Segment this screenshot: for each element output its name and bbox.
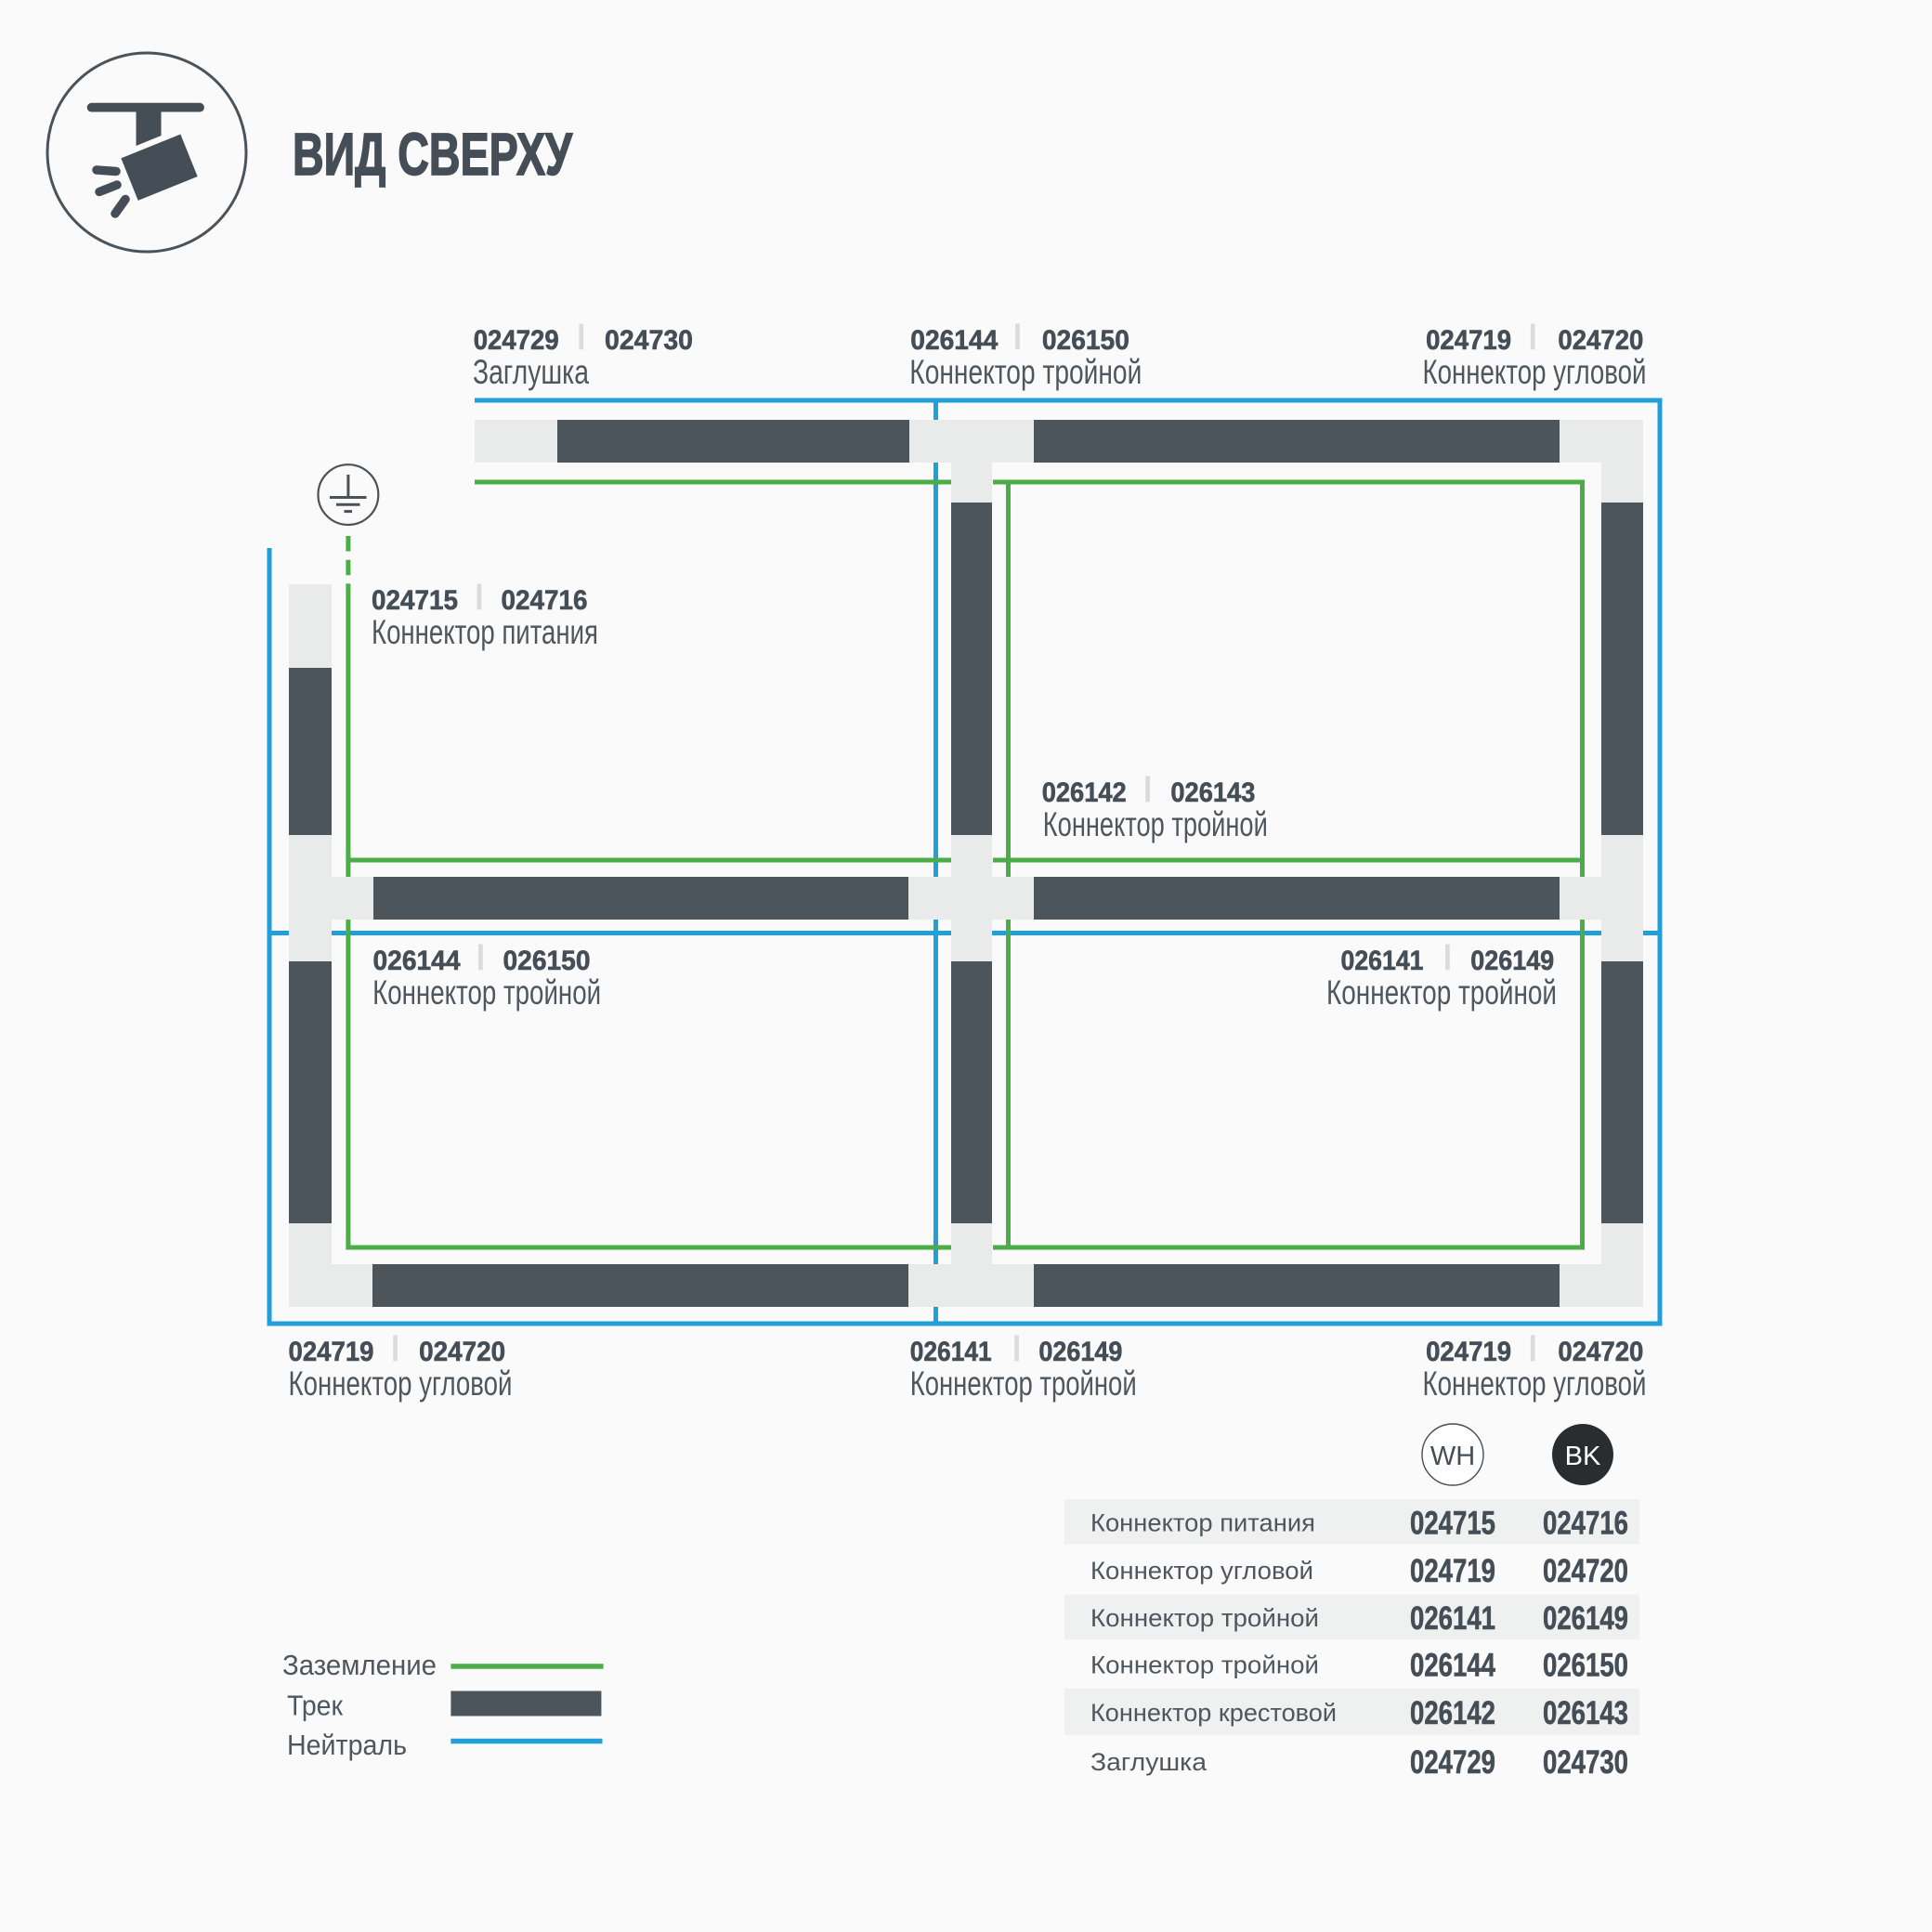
svg-text:Коннектор питания: Коннектор питания	[372, 613, 598, 651]
svg-text:026142: 026142	[1042, 777, 1127, 808]
svg-text:024719: 024719	[1410, 1553, 1495, 1589]
svg-text:026150: 026150	[1543, 1647, 1628, 1683]
svg-text:Заглушка: Заглушка	[1090, 1748, 1207, 1776]
svg-text:Коннектор тройной: Коннектор тройной	[910, 1364, 1137, 1403]
svg-text:024720: 024720	[1558, 1337, 1643, 1367]
svg-text:024716: 024716	[502, 585, 588, 616]
svg-text:Коннектор тройной: Коннектор тройной	[1326, 973, 1557, 1012]
svg-text:024720: 024720	[1558, 325, 1643, 356]
svg-text:024719: 024719	[289, 1337, 374, 1367]
svg-text:024730: 024730	[1543, 1744, 1628, 1781]
svg-text:024716: 024716	[1543, 1505, 1628, 1541]
svg-text:026149: 026149	[1470, 946, 1554, 976]
svg-text:Заземление: Заземление	[282, 1650, 437, 1681]
svg-text:024719: 024719	[1426, 1337, 1511, 1367]
svg-text:Коннектор крестовой: Коннектор крестовой	[1090, 1699, 1337, 1727]
svg-text:024715: 024715	[372, 585, 458, 616]
svg-text:Коннектор угловой: Коннектор угловой	[1423, 1364, 1647, 1403]
svg-text:026141: 026141	[1341, 946, 1424, 976]
svg-text:Коннектор тройной: Коннектор тройной	[1090, 1651, 1319, 1679]
svg-text:Коннектор питания: Коннектор питания	[1090, 1509, 1315, 1537]
svg-text:026144: 026144	[1410, 1647, 1495, 1683]
svg-text:026144: 026144	[910, 325, 998, 356]
svg-text:Трек: Трек	[287, 1690, 344, 1722]
svg-text:Коннектор тройной: Коннектор тройной	[909, 353, 1142, 391]
svg-text:026149: 026149	[1038, 1337, 1122, 1367]
svg-text:Коннектор угловой: Коннектор угловой	[1423, 353, 1647, 391]
svg-text:024729: 024729	[474, 325, 559, 356]
svg-text:Заглушка: Заглушка	[473, 353, 589, 391]
svg-text:Коннектор угловой: Коннектор угловой	[289, 1364, 513, 1403]
svg-text:Коннектор тройной: Коннектор тройной	[372, 973, 601, 1012]
svg-text:024715: 024715	[1410, 1505, 1495, 1541]
svg-text:Коннектор тройной: Коннектор тройной	[1043, 805, 1268, 843]
svg-text:026143: 026143	[1170, 777, 1255, 808]
svg-text:026142: 026142	[1410, 1695, 1495, 1731]
svg-text:026143: 026143	[1543, 1695, 1628, 1731]
svg-text:026144: 026144	[373, 946, 461, 976]
svg-text:ВИД СВЕРХУ: ВИД СВЕРХУ	[293, 121, 573, 188]
svg-text:024729: 024729	[1410, 1744, 1495, 1781]
svg-text:024730: 024730	[605, 325, 693, 356]
svg-text:Нейтраль: Нейтраль	[287, 1730, 407, 1761]
svg-text:Коннектор тройной: Коннектор тройной	[1090, 1604, 1319, 1632]
svg-text:Коннектор угловой: Коннектор угловой	[1090, 1557, 1313, 1585]
svg-text:026141: 026141	[1410, 1600, 1495, 1637]
svg-text:024720: 024720	[1543, 1553, 1628, 1589]
svg-text:024719: 024719	[1426, 325, 1511, 356]
svg-text:026149: 026149	[1543, 1600, 1628, 1637]
svg-text:026150: 026150	[1042, 325, 1129, 356]
svg-text:026150: 026150	[503, 946, 591, 976]
svg-text:BK: BK	[1565, 1442, 1601, 1471]
svg-text:WH: WH	[1430, 1442, 1475, 1471]
svg-text:026141: 026141	[910, 1337, 992, 1367]
svg-text:024720: 024720	[419, 1337, 505, 1367]
